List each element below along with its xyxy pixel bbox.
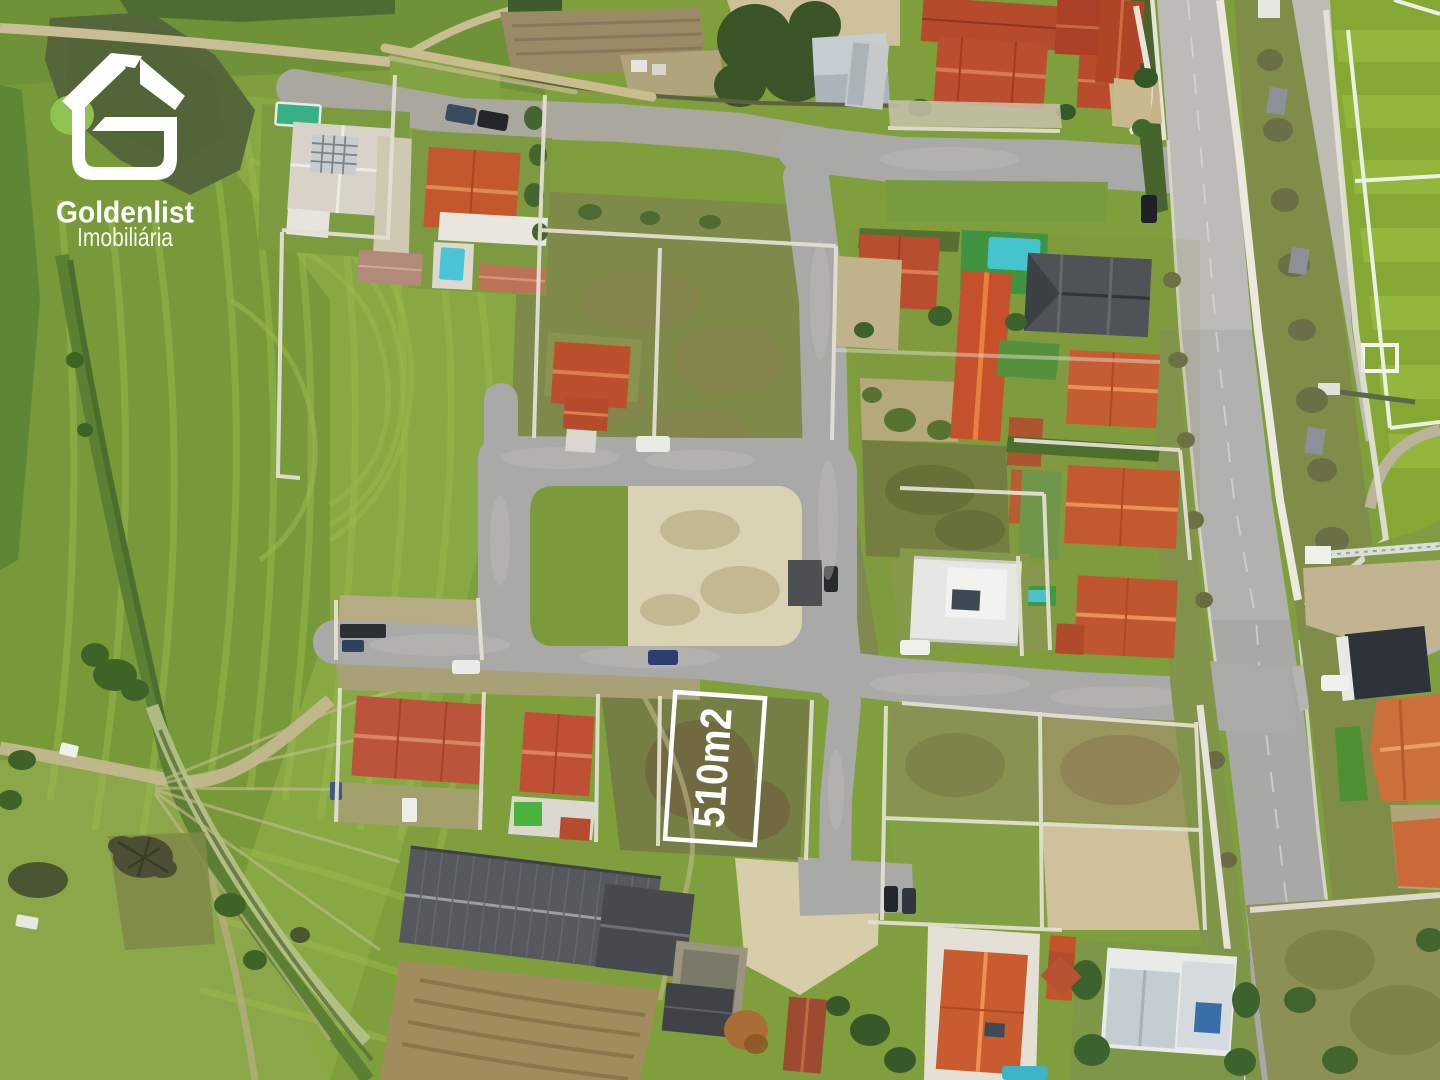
svg-text:510m2: 510m2 bbox=[684, 706, 741, 829]
svg-text:Imobiliária: Imobiliária bbox=[77, 222, 173, 252]
